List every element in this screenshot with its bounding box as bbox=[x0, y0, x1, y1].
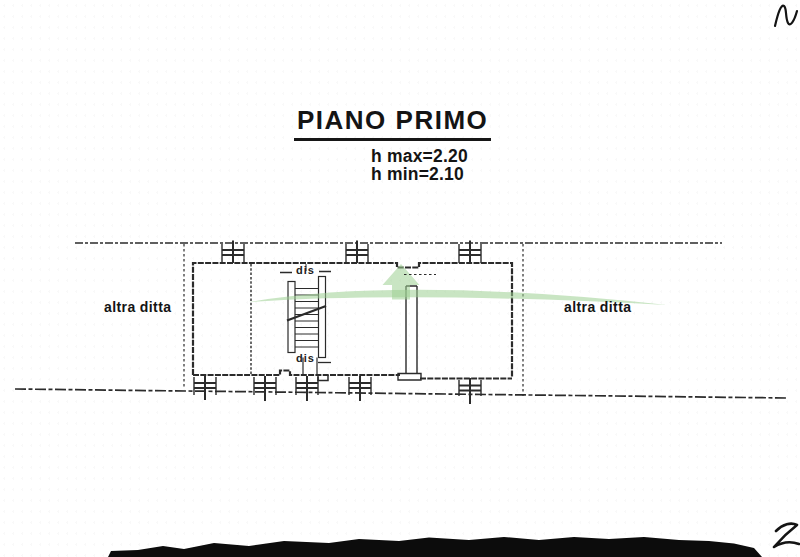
window-in-wall-symbol bbox=[222, 241, 481, 264]
left-neighbor-label: altra ditta bbox=[104, 299, 171, 315]
height-annotations: h max=2.20 h min=2.10 bbox=[371, 147, 468, 183]
window-in-wall-symbol bbox=[194, 376, 481, 404]
scan-artifacts bbox=[108, 6, 799, 557]
handwritten-mark-bottom-right bbox=[774, 524, 799, 547]
page-title: PIANO PRIMO bbox=[294, 105, 491, 141]
unit-walls bbox=[193, 263, 512, 381]
stair-label-bottom: dis bbox=[296, 352, 315, 364]
height-max-label: h max=2.20 bbox=[371, 147, 468, 165]
floor-plan-page: PIANO PRIMO h max=2.20 h min=2.10 altra … bbox=[0, 0, 800, 557]
handwritten-mark-top-right bbox=[775, 6, 797, 26]
height-min-label: h min=2.10 bbox=[371, 165, 468, 183]
partition-wall bbox=[398, 286, 421, 380]
stair-label-top: dis bbox=[296, 264, 315, 276]
plan-drawing bbox=[0, 0, 800, 557]
staircase-symbol bbox=[251, 264, 331, 374]
scan-edge-band bbox=[108, 537, 762, 557]
right-neighbor-label: altra ditta bbox=[564, 299, 631, 315]
